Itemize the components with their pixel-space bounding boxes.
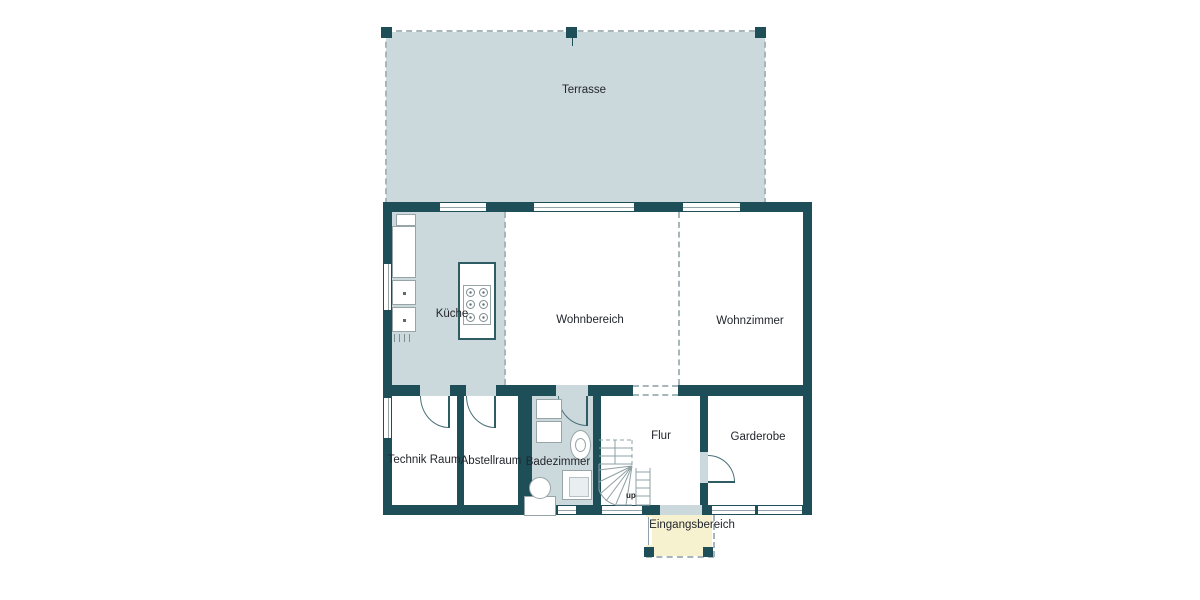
burner-icon: [466, 288, 475, 297]
toilet-base: [524, 496, 556, 516]
kitchen-appliance-1: [392, 280, 416, 305]
room-label-garderobe: Garderobe: [731, 431, 786, 443]
wall-flur-garderobe: [700, 390, 708, 510]
window-technik-left: [384, 398, 391, 438]
terrace-edge-right: [764, 32, 766, 204]
door-gap-entrance: [660, 505, 702, 515]
room-label-eingangsbereich: Eingangsbereich: [649, 519, 735, 531]
room-label-abstellraum: Abstellraum: [461, 455, 522, 467]
window-kueche-top: [440, 203, 486, 211]
window-garderobe-bottom-1: [712, 506, 755, 514]
room-label-badezimmer: Badezimmer: [526, 456, 591, 468]
door-leaf-technik: [448, 396, 450, 428]
door-arc-technik: [420, 396, 449, 428]
divider-wohnbereich-wohnzimmer: [678, 212, 680, 385]
kitchen-vent-grill: [394, 334, 414, 342]
window-garderobe-bottom-2: [758, 506, 802, 514]
kitchen-sink-counter: [396, 214, 416, 226]
burner-icon: [479, 300, 488, 309]
wall-technik-abstell: [457, 390, 464, 510]
wall-right: [803, 202, 812, 515]
staircase: [596, 438, 654, 508]
terrace-post-middle: [566, 27, 577, 38]
terrace-area: [386, 32, 765, 204]
door-arc-garderobe: [708, 455, 735, 482]
door-arc-abstell: [466, 396, 495, 428]
divider-kueche-wohnbereich: [504, 212, 506, 385]
door-gap-garderobe: [700, 452, 708, 483]
door-leaf-abstell: [494, 396, 496, 428]
terrace-post-middle-tick: [572, 38, 573, 46]
window-wohnzimmer-top: [683, 203, 740, 211]
room-label-wohnzimmer: Wohnzimmer: [716, 315, 784, 327]
room-label-wohnbereich: Wohnbereich: [556, 314, 624, 326]
toilet-bowl: [529, 477, 551, 499]
bath-cabinet-2: [536, 421, 562, 443]
burner-icon: [479, 313, 488, 322]
terrace-post-left: [381, 27, 392, 38]
stairs-direction-label: up: [626, 491, 636, 500]
room-label-technik-raum: Technik Raum: [388, 454, 461, 466]
window-bad-bottom: [558, 506, 576, 514]
wall-left: [383, 202, 392, 515]
bath-cabinet-1: [536, 399, 562, 419]
terrace-post-right: [755, 27, 766, 38]
room-label-terrasse: Terrasse: [562, 84, 606, 96]
window-kueche-left: [384, 264, 391, 310]
room-label-kueche: Küche: [436, 308, 469, 320]
burner-icon: [479, 288, 488, 297]
door-gap-technik: [420, 385, 450, 396]
kitchen-appliance-2: [392, 307, 416, 332]
door-leaf-bad: [586, 396, 588, 426]
opening-wohnbereich-flur: [633, 385, 678, 396]
washbasin-inner: [575, 438, 586, 452]
door-leaf-garderobe: [708, 481, 735, 483]
door-gap-bad: [556, 385, 588, 396]
room-label-flur: Flur: [651, 430, 671, 442]
window-wohnbereich-top: [534, 203, 634, 211]
entry-post-right: [703, 547, 713, 557]
door-gap-abstell: [466, 385, 496, 396]
terrace-edge-left: [385, 32, 387, 204]
kitchen-counter: [392, 226, 416, 278]
floor-plan: up Terrasse Küche Wohnbereich Wohnzimmer…: [0, 0, 1200, 600]
entry-post-left: [644, 547, 654, 557]
shower-tray: [569, 477, 589, 497]
